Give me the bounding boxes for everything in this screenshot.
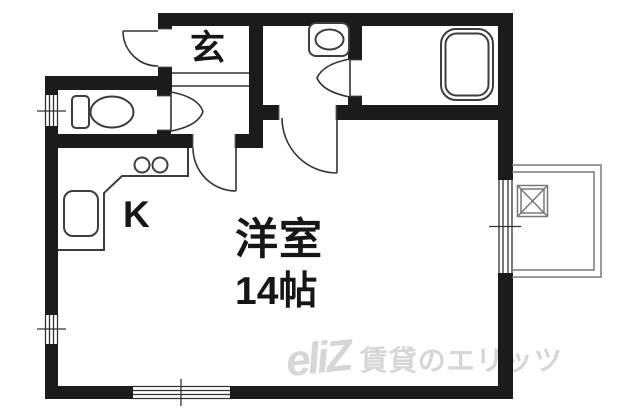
entrance-label: 玄 <box>190 31 225 66</box>
window-toilet-left <box>37 95 66 126</box>
wall-bath-divider-upper <box>348 26 362 59</box>
hall-door <box>193 148 236 191</box>
wall-bottom-left <box>45 386 133 399</box>
wall-bottom-right <box>230 386 513 399</box>
genkan-step-lines <box>172 73 249 86</box>
wall-toilet-top <box>45 76 158 90</box>
washbasin-icon <box>309 23 349 56</box>
wall-genkan-left-upper <box>158 13 172 28</box>
window-lower-left <box>37 315 66 344</box>
toilet-door-wedge <box>171 92 203 131</box>
washroom-door <box>282 118 337 173</box>
wall-genkan-left-lower <box>158 68 172 93</box>
wall-left-b <box>45 126 58 315</box>
room-size: 14帖 <box>235 272 323 311</box>
floorplan-drawing <box>0 0 640 416</box>
main-room-label: 洋室 14帖 <box>235 219 323 311</box>
kitchen-label: K <box>123 196 150 233</box>
bathtub-icon <box>441 29 493 100</box>
floorplan-canvas: eliZ 賃貸のエリッツ <box>0 0 640 416</box>
window-bottom <box>133 379 230 406</box>
entrance-door <box>123 31 158 66</box>
wall-right-upper <box>498 13 513 180</box>
wall-bath-divider-lower <box>348 97 362 110</box>
wall-kitchen-top <box>45 134 192 148</box>
wall-right-lower <box>498 273 513 399</box>
toilet-icon <box>72 96 134 128</box>
bath-door-wedge <box>317 59 350 97</box>
balcony <box>512 165 601 277</box>
wall-hall-right <box>249 13 263 148</box>
kitchen-sink-icon <box>64 191 98 236</box>
room-name: 洋室 <box>235 219 323 262</box>
stove-burners-icon <box>135 158 168 173</box>
wall-washroom-bottom-left <box>263 105 278 120</box>
wall-left-c <box>45 344 58 399</box>
window-right-balcony <box>489 180 521 273</box>
washer-pan-icon <box>518 186 548 217</box>
